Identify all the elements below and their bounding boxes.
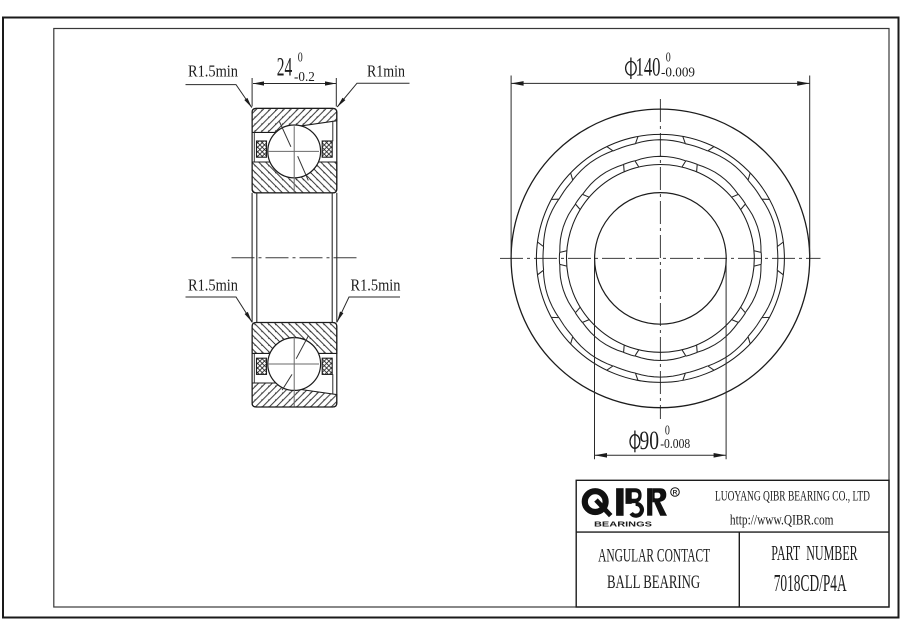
svg-text:R1min: R1min (367, 61, 406, 80)
svg-text:R1.5min: R1.5min (188, 61, 239, 80)
svg-text:0: 0 (666, 50, 671, 65)
svg-text:http://www.QIBR.com: http://www.QIBR.com (730, 512, 834, 529)
svg-text:0: 0 (298, 50, 303, 65)
svg-text:24: 24 (277, 51, 293, 81)
svg-text:ANGULAR CONTACT: ANGULAR CONTACT (598, 545, 710, 566)
svg-text:BEARINGS: BEARINGS (594, 520, 652, 529)
svg-text:-0.2: -0.2 (294, 69, 315, 84)
svg-text:-0.009: -0.009 (661, 65, 695, 80)
svg-text:R: R (673, 490, 678, 497)
svg-text:R1.5min: R1.5min (351, 275, 402, 294)
svg-text:7018CD/P4A: 7018CD/P4A (774, 570, 847, 597)
svg-text:140: 140 (636, 51, 661, 81)
svg-text:LUOYANG QIBR BEARING CO., LTD: LUOYANG QIBR BEARING CO., LTD (715, 488, 870, 505)
svg-text:-0.008: -0.008 (660, 436, 690, 451)
svg-text:90: 90 (640, 425, 660, 455)
svg-text:BALL BEARING: BALL BEARING (607, 572, 700, 593)
svg-text:R1.5min: R1.5min (188, 275, 239, 294)
svg-text:PART NUMBER: PART NUMBER (771, 541, 857, 565)
